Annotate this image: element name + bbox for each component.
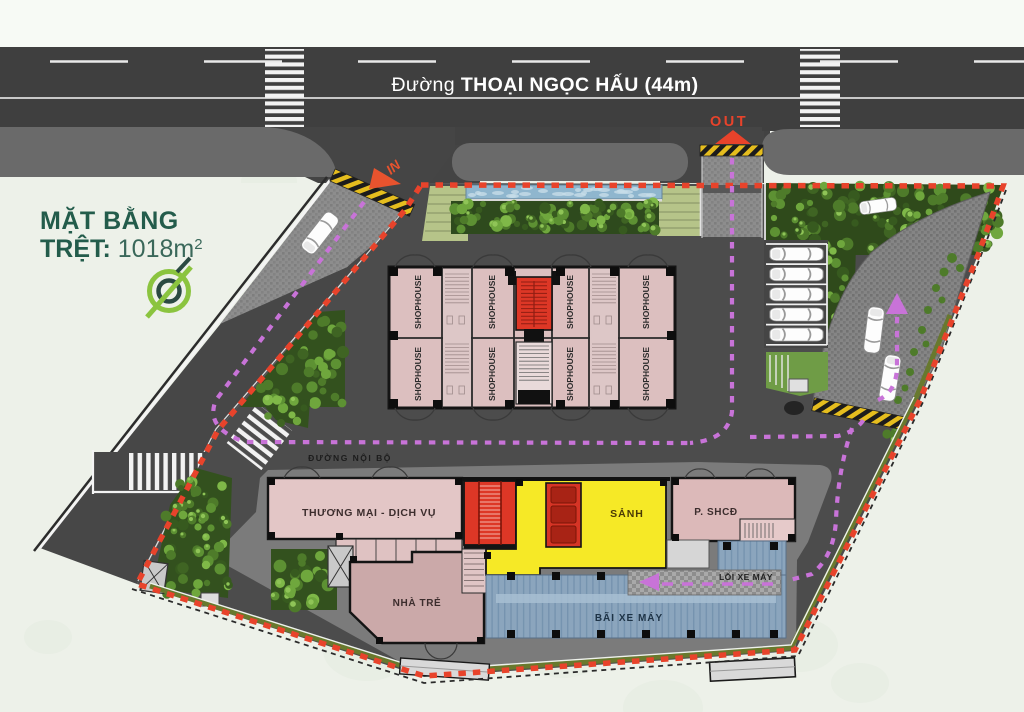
svg-text:TRỆT: 1018m2: TRỆT: 1018m2	[40, 233, 203, 263]
svg-text:SHOPHOUSE: SHOPHOUSE	[487, 275, 497, 329]
svg-text:SHOPHOUSE: SHOPHOUSE	[565, 275, 575, 329]
svg-text:SHOPHOUSE: SHOPHOUSE	[565, 347, 575, 401]
svg-text:NHÀ TRẺ: NHÀ TRẺ	[393, 596, 442, 609]
svg-text:SHOPHOUSE: SHOPHOUSE	[641, 275, 651, 329]
svg-text:SHOPHOUSE: SHOPHOUSE	[413, 347, 423, 401]
svg-text:THƯƠNG MẠI - DỊCH VỤ: THƯƠNG MẠI - DỊCH VỤ	[302, 507, 436, 519]
svg-text:MẶT BẰNG: MẶT BẰNG	[40, 206, 179, 235]
svg-text:ĐƯỜNG NỘI BỘ: ĐƯỜNG NỘI BỘ	[308, 452, 392, 463]
svg-text:SHOPHOUSE: SHOPHOUSE	[487, 347, 497, 401]
svg-text:BÃI XE MÁY: BÃI XE MÁY	[595, 611, 663, 624]
svg-text:OUT: OUT	[710, 114, 748, 130]
svg-text:LỐI XE MÁY: LỐI XE MÁY	[719, 571, 773, 582]
svg-text:SHOPHOUSE: SHOPHOUSE	[413, 275, 423, 329]
svg-text:SHOPHOUSE: SHOPHOUSE	[641, 347, 651, 401]
svg-text:P. SHCĐ: P. SHCĐ	[694, 507, 737, 518]
svg-text:SẢNH: SẢNH	[610, 507, 644, 520]
svg-text:Đường THOẠI NGỌC HẤU (44m): Đường THOẠI NGỌC HẤU (44m)	[391, 73, 698, 96]
